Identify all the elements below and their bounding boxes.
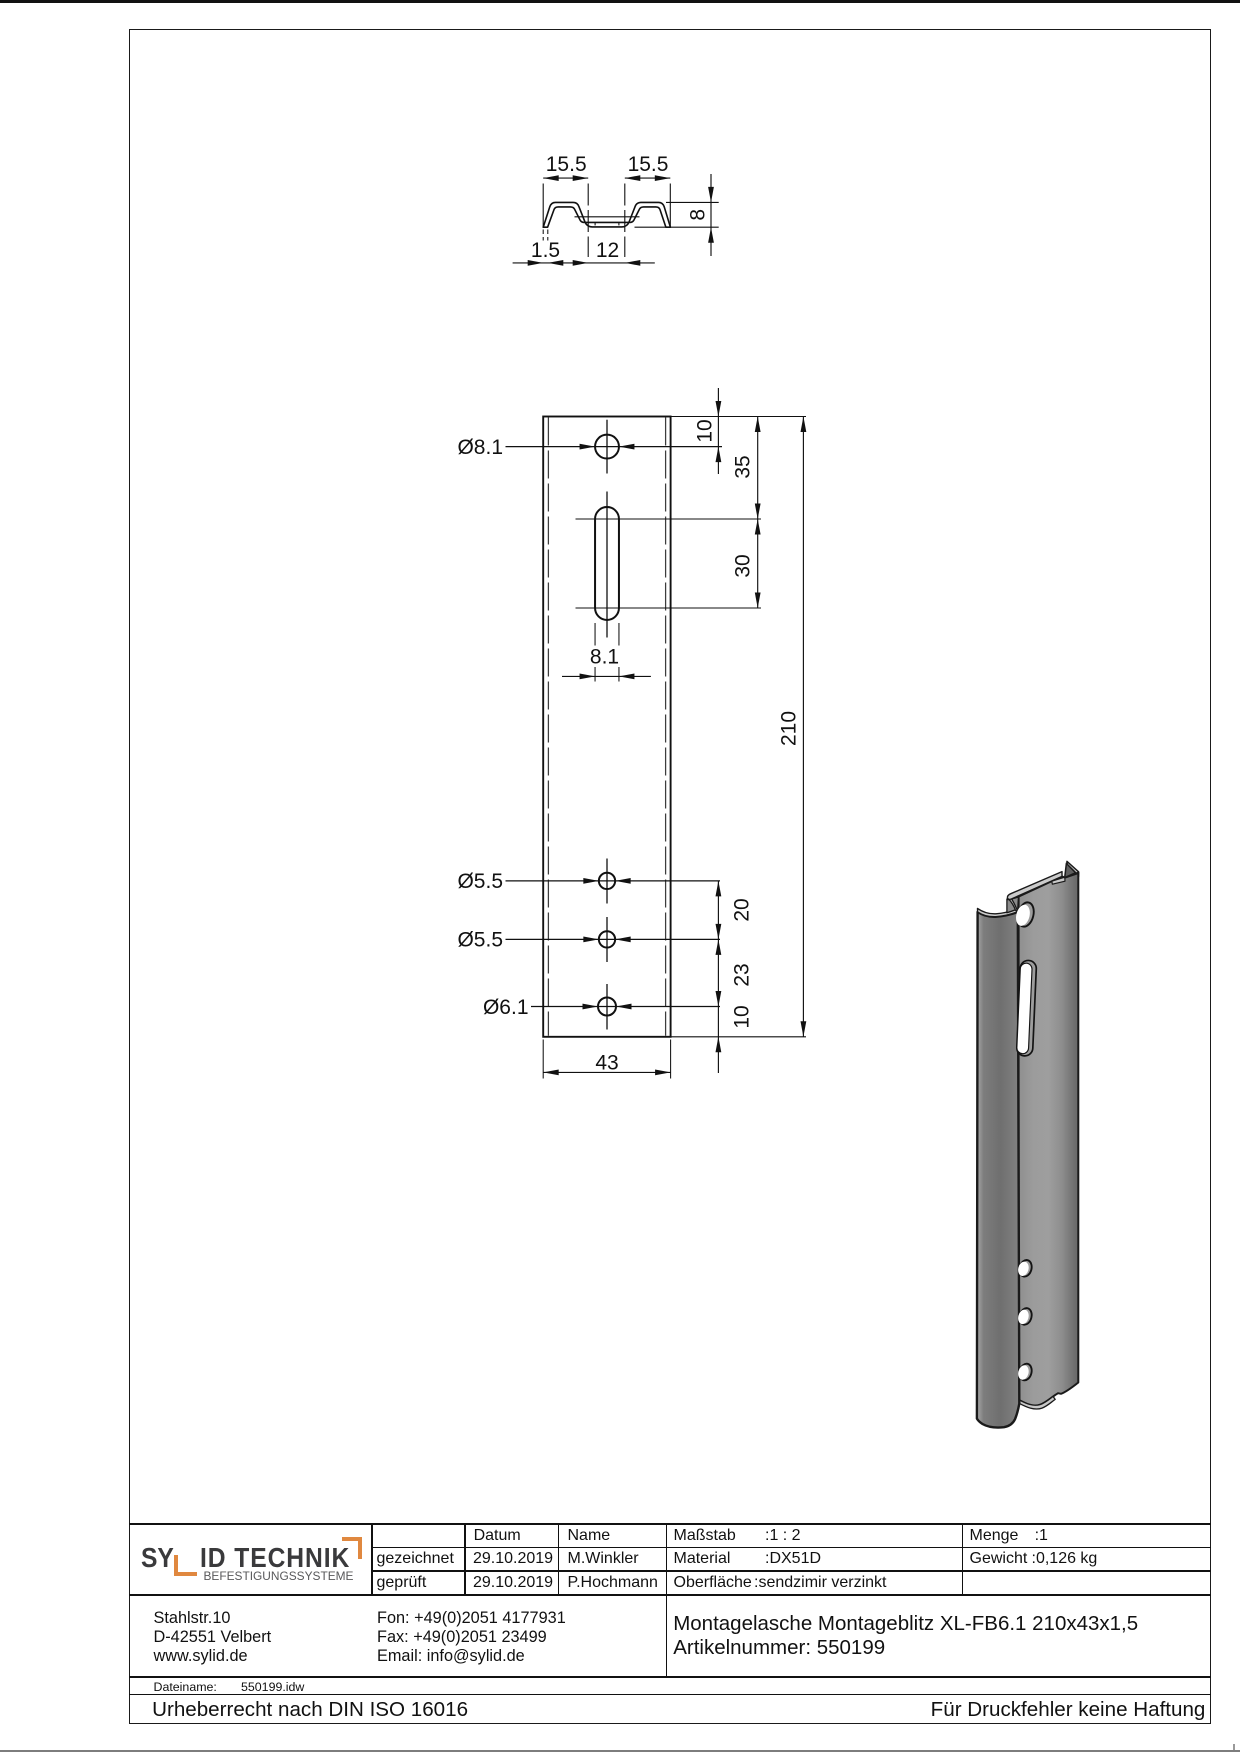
svg-text:23: 23 (730, 963, 753, 986)
svg-text:Ø6.1: Ø6.1 (483, 996, 529, 1019)
svg-text:43: 43 (595, 1052, 618, 1075)
svg-text:35: 35 (731, 455, 754, 478)
svg-text:30: 30 (731, 554, 754, 577)
svg-text:10: 10 (730, 1005, 753, 1028)
svg-text:15.5: 15.5 (546, 153, 587, 176)
svg-text:8: 8 (686, 209, 709, 221)
svg-text:Ø8.1: Ø8.1 (457, 436, 503, 459)
svg-text:12: 12 (596, 239, 619, 262)
svg-text:1.5: 1.5 (531, 239, 560, 262)
svg-text:20: 20 (730, 898, 753, 921)
svg-text:Ø5.5: Ø5.5 (457, 929, 503, 952)
svg-text:8.1: 8.1 (590, 646, 619, 669)
svg-text:10: 10 (693, 419, 716, 442)
svg-text:15.5: 15.5 (628, 153, 669, 176)
svg-text:210: 210 (777, 711, 800, 746)
svg-text:Ø5.5: Ø5.5 (457, 870, 503, 893)
